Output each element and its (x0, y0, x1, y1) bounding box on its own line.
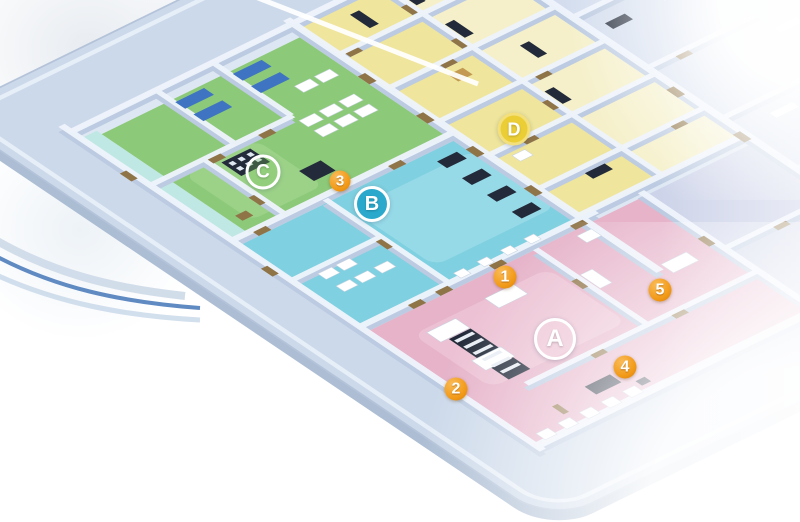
zone-marker-D[interactable]: D (498, 113, 531, 146)
room-marker-5[interactable]: 5 (649, 279, 672, 302)
zone-marker-label: D (508, 120, 521, 138)
room-marker-label: 2 (452, 381, 461, 397)
zone-marker-label: B (365, 194, 379, 214)
room-marker-label: 5 (656, 282, 665, 298)
zone-marker-B[interactable]: B (354, 186, 390, 222)
zone-marker-label: C (256, 163, 270, 182)
floor-plan-3d (0, 0, 800, 522)
room-marker-2[interactable]: 2 (445, 378, 468, 401)
room-marker-4[interactable]: 4 (614, 356, 637, 379)
zone-marker-A[interactable]: A (534, 318, 576, 360)
room-marker-1[interactable]: 1 (494, 266, 517, 289)
zone-marker-label: A (546, 327, 563, 351)
floor-plan-illustration: C B D A 1 2 3 4 5 (0, 0, 800, 522)
room-marker-3[interactable]: 3 (330, 171, 351, 192)
room-marker-label: 1 (501, 269, 510, 285)
room-marker-label: 4 (621, 359, 630, 375)
zone-marker-C[interactable]: C (246, 155, 281, 190)
room-marker-label: 3 (336, 174, 344, 189)
